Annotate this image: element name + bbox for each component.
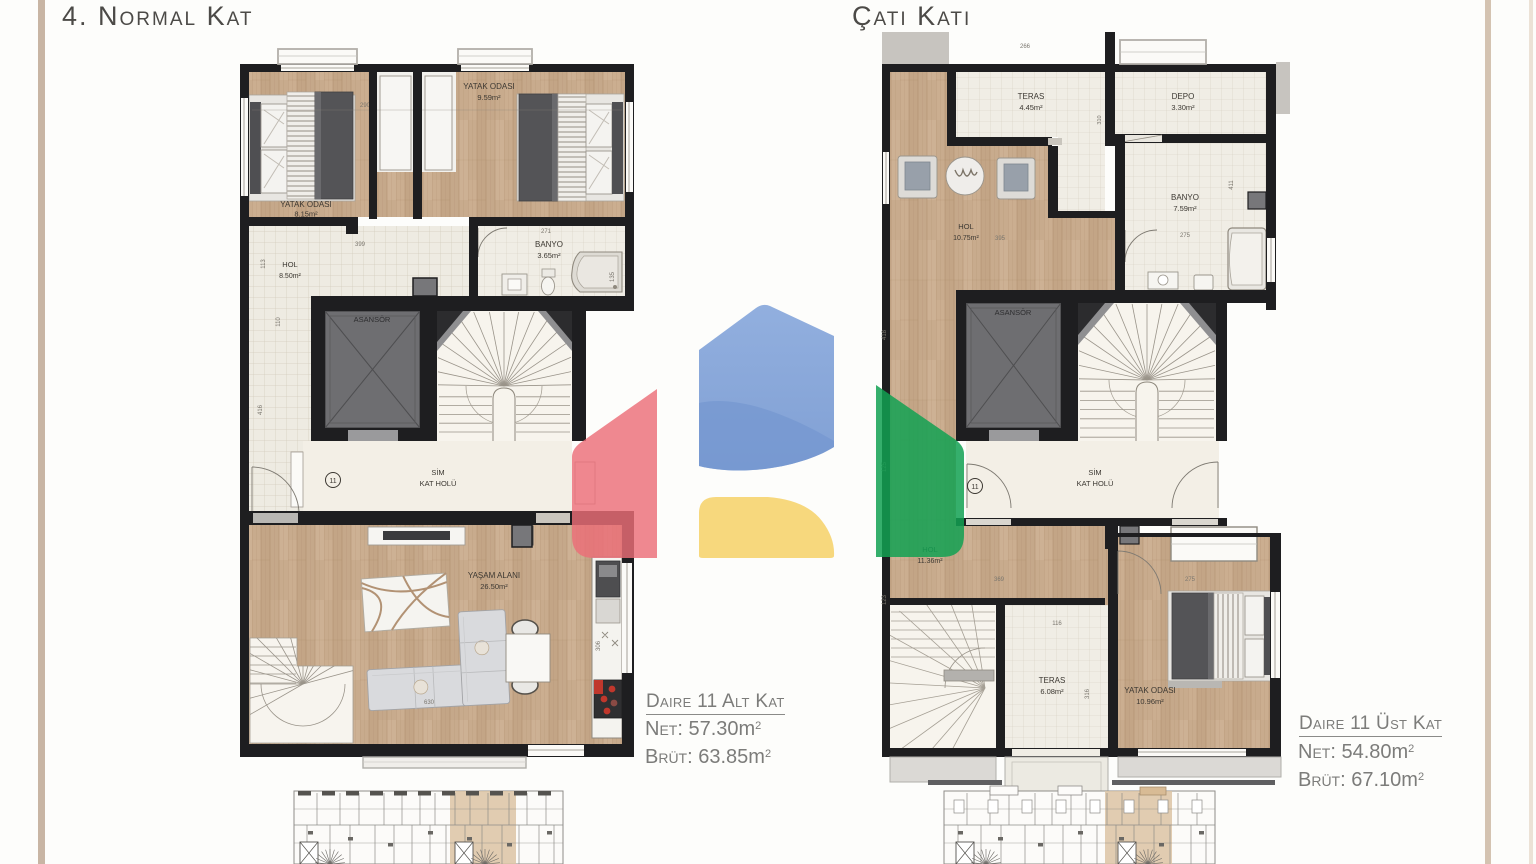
svg-text:YATAK ODASI: YATAK ODASI: [463, 82, 515, 91]
svg-text:275: 275: [1180, 233, 1191, 239]
svg-text:369: 369: [994, 577, 1005, 583]
svg-text:YATAK ODASI: YATAK ODASI: [280, 200, 332, 209]
svg-text:10.75m²: 10.75m²: [953, 235, 979, 242]
svg-text:TERAS: TERAS: [1018, 92, 1045, 101]
svg-text:416: 416: [258, 404, 264, 415]
svg-text:SİM: SİM: [431, 468, 444, 477]
svg-text:11.36m²: 11.36m²: [917, 558, 943, 565]
svg-text:YAŞAM ALANI: YAŞAM ALANI: [468, 571, 520, 580]
svg-text:275: 275: [1185, 577, 1196, 583]
svg-text:399: 399: [355, 242, 366, 248]
svg-text:3.30m²: 3.30m²: [1171, 103, 1195, 112]
svg-text:26.50m²: 26.50m²: [480, 582, 508, 591]
svg-text:HOL: HOL: [958, 222, 973, 231]
svg-text:8.50m²: 8.50m²: [279, 273, 301, 280]
svg-text:316: 316: [1085, 688, 1091, 699]
svg-text:6.08m²: 6.08m²: [1040, 687, 1064, 696]
svg-text:116: 116: [1052, 621, 1062, 627]
svg-text:266: 266: [1020, 44, 1031, 50]
svg-text:KAT HOLÜ: KAT HOLÜ: [420, 479, 457, 488]
svg-text:BANYO: BANYO: [535, 240, 563, 249]
svg-text:ASANSÖR: ASANSÖR: [995, 308, 1032, 317]
svg-text:ASANSÖR: ASANSÖR: [354, 315, 391, 324]
svg-text:HOL: HOL: [282, 260, 297, 269]
svg-text:306: 306: [596, 640, 602, 651]
svg-text:9.59m²: 9.59m²: [477, 93, 501, 102]
svg-text:395: 395: [995, 236, 1006, 242]
svg-text:BANYO: BANYO: [1171, 193, 1199, 202]
svg-text:110: 110: [276, 317, 282, 327]
svg-text:TERAS: TERAS: [1039, 676, 1066, 685]
svg-text:418: 418: [882, 329, 888, 340]
svg-text:310: 310: [1097, 115, 1103, 124]
svg-text:123: 123: [882, 594, 888, 605]
svg-text:11: 11: [971, 484, 978, 491]
svg-text:411: 411: [1229, 180, 1235, 190]
svg-text:SİM: SİM: [1088, 468, 1101, 477]
svg-text:4.45m²: 4.45m²: [1019, 103, 1043, 112]
svg-text:7.59m²: 7.59m²: [1173, 204, 1197, 213]
svg-text:10.96m²: 10.96m²: [1136, 697, 1164, 706]
svg-text:271: 271: [541, 229, 552, 235]
svg-text:11: 11: [329, 478, 336, 485]
svg-text:113: 113: [261, 259, 267, 269]
svg-text:YATAK ODASI: YATAK ODASI: [1124, 686, 1176, 695]
svg-text:135: 135: [610, 271, 616, 282]
svg-text:630: 630: [424, 700, 435, 706]
svg-text:DEPO: DEPO: [1172, 92, 1195, 101]
svg-text:KAT HOLÜ: KAT HOLÜ: [1077, 479, 1114, 488]
svg-text:3.65m²: 3.65m²: [537, 251, 561, 260]
